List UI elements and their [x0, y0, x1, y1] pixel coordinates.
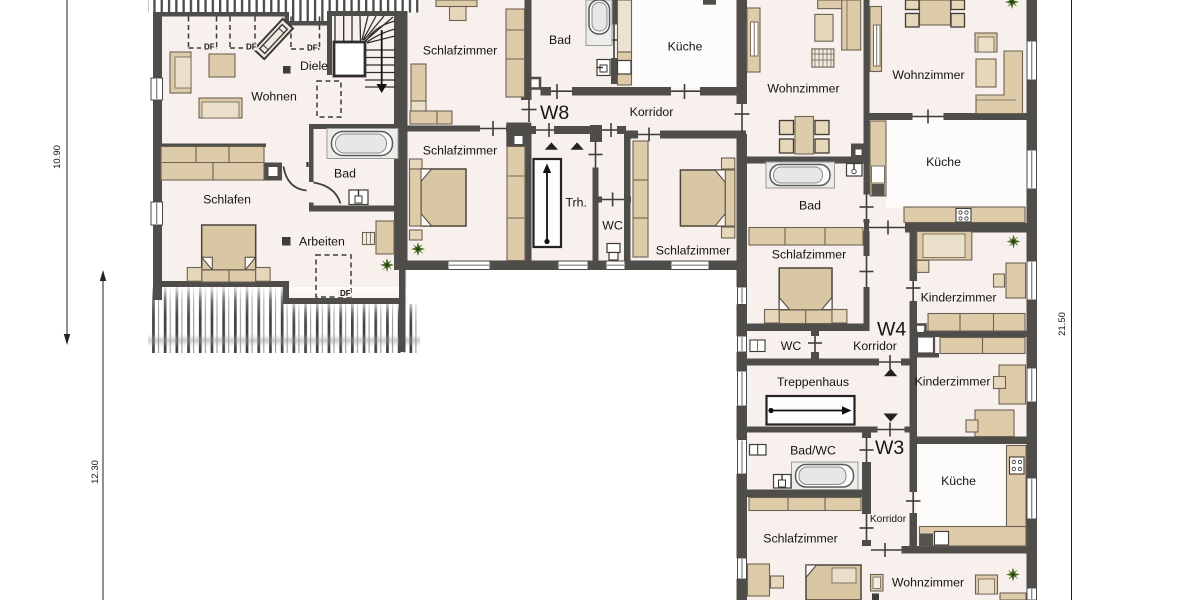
svg-text:Schlafen: Schlafen — [203, 193, 251, 207]
svg-text:DF: DF — [204, 43, 215, 52]
svg-text:Wohnen: Wohnen — [251, 90, 297, 104]
svg-text:Küche: Küche — [926, 155, 961, 169]
svg-text:Korridor: Korridor — [870, 514, 907, 525]
svg-text:Wohnzimmer: Wohnzimmer — [892, 576, 964, 590]
svg-text:Wohnzimmer: Wohnzimmer — [892, 68, 964, 82]
svg-text:W8: W8 — [540, 102, 569, 124]
svg-text:Bad: Bad — [549, 33, 571, 47]
svg-text:DF: DF — [307, 44, 318, 53]
svg-text:Korridor: Korridor — [853, 339, 897, 353]
svg-text:Arbeiten: Arbeiten — [299, 235, 345, 249]
svg-text:Schlafzimmer: Schlafzimmer — [656, 244, 730, 258]
svg-text:Kinderzimmer: Kinderzimmer — [915, 375, 991, 389]
svg-text:W4: W4 — [877, 319, 906, 341]
svg-text:Schlafzimmer: Schlafzimmer — [423, 144, 497, 158]
svg-text:10.90: 10.90 — [52, 145, 63, 169]
svg-text:DF: DF — [246, 43, 257, 52]
svg-text:Korridor: Korridor — [630, 105, 674, 119]
svg-text:Bad/WC: Bad/WC — [790, 444, 836, 458]
svg-text:Trh.: Trh. — [566, 196, 587, 210]
svg-text:Schlafzimmer: Schlafzimmer — [423, 44, 497, 58]
svg-text:Bad: Bad — [334, 167, 356, 181]
svg-text:Schlafzimmer: Schlafzimmer — [763, 532, 837, 546]
svg-text:WC: WC — [781, 339, 802, 353]
svg-text:Küche: Küche — [941, 474, 976, 488]
svg-text:Schlafzimmer: Schlafzimmer — [772, 248, 846, 262]
svg-text:Kinderzimmer: Kinderzimmer — [921, 291, 997, 305]
svg-text:WC: WC — [602, 219, 623, 233]
svg-text:Bad: Bad — [799, 199, 821, 213]
svg-text:DF: DF — [340, 289, 351, 298]
svg-text:Küche: Küche — [668, 40, 703, 54]
svg-text:Diele: Diele — [300, 59, 328, 73]
svg-text:Treppenhaus: Treppenhaus — [777, 375, 849, 389]
svg-text:12.30: 12.30 — [90, 460, 101, 484]
svg-text:Wohnzimmer: Wohnzimmer — [767, 82, 839, 96]
svg-text:21.50: 21.50 — [1057, 312, 1068, 336]
svg-text:W3: W3 — [875, 437, 904, 459]
